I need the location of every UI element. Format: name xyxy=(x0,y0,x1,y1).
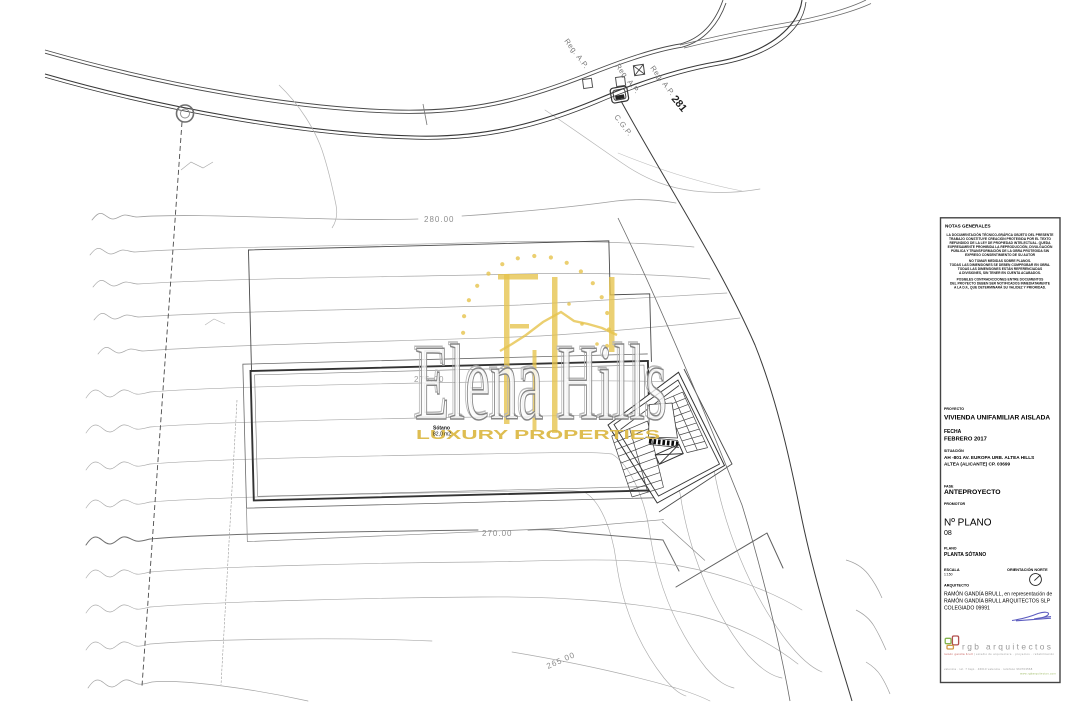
svg-text:COLEGIADO 09991: COLEGIADO 09991 xyxy=(944,606,990,612)
svg-text:A LA D.F., QUE DETERMINARÁ SU: A LA D.F., QUE DETERMINARÁ SU VALIDEZ Y … xyxy=(954,284,1046,289)
svg-text:NOTAS GENERALES: NOTAS GENERALES xyxy=(945,224,991,229)
svg-text:AH -801 AV. EUROPA URB. ALTE: AH -801 AV. EUROPA URB. ALTEA HILLS xyxy=(944,455,1034,460)
svg-text:www.rgbarquitectos.com: www.rgbarquitectos.com xyxy=(1020,672,1056,676)
svg-text:ALTEA (ALICANTE) CP. 03699: ALTEA (ALICANTE) CP. 03699 xyxy=(944,462,1010,467)
svg-text:1:150: 1:150 xyxy=(944,573,953,577)
svg-text:EXPRESO CONSENTIMIENTO DE SU A: EXPRESO CONSENTIMIENTO DE SU AUTOR xyxy=(965,253,1036,257)
svg-text:82,0 m2: 82,0 m2 xyxy=(433,432,451,438)
svg-text:LUXURY PROPERTIES: LUXURY PROPERTIES xyxy=(416,427,660,442)
svg-text:SITUACIÓN: SITUACIÓN xyxy=(944,448,964,453)
svg-text:PROYECTO: PROYECTO xyxy=(944,407,964,411)
svg-text:Elena Hills: Elena Hills xyxy=(415,324,667,443)
svg-text:FECHA: FECHA xyxy=(944,429,962,435)
svg-text:FEBRERO 2017: FEBRERO 2017 xyxy=(944,437,987,443)
svg-text:A DIVISIONES, SIN TENER EN CUE: A DIVISIONES, SIN TENER EN CUENTA ACABAD… xyxy=(959,271,1041,275)
svg-text:ARQUITECTO: ARQUITECTO xyxy=(944,584,969,588)
svg-text:PLANTA SÓTANO: PLANTA SÓTANO xyxy=(944,550,986,558)
svg-text:280.00: 280.00 xyxy=(424,215,454,224)
svg-text:RAMÓN GANDÍA BRULL ARQUITECTOS: RAMÓN GANDÍA BRULL ARQUITECTOS SLP xyxy=(944,598,1051,605)
svg-text:ANTEPROYECTO: ANTEPROYECTO xyxy=(944,489,1001,496)
svg-text:rgb arquitectos: rgb arquitectos xyxy=(962,642,1053,652)
svg-text:08: 08 xyxy=(944,530,952,537)
svg-text:valencia · tel. 7 bajo · 4601: valencia · tel. 7 bajo · 46010 valencia … xyxy=(944,667,1033,671)
svg-text:VIVIENDA UNIFAMILIAR AISLADA: VIVIENDA UNIFAMILIAR AISLADA xyxy=(944,415,1050,422)
svg-text:PLANO: PLANO xyxy=(944,547,957,551)
svg-text:ramón gandía brull | estudio d: ramón gandía brull | estudio de arquitec… xyxy=(944,652,1055,656)
svg-text:FASE: FASE xyxy=(944,485,954,489)
svg-text:PROMOTOR: PROMOTOR xyxy=(944,502,966,506)
svg-text:ORIENTACIÓN NORTE: ORIENTACIÓN NORTE xyxy=(1007,567,1048,572)
svg-text:Nº PLANO: Nº PLANO xyxy=(944,518,992,529)
svg-text:RAMÓN GANDÍA BRULL, en represe: RAMÓN GANDÍA BRULL, en representación de xyxy=(944,591,1052,598)
svg-text:ESCALA: ESCALA xyxy=(944,568,960,572)
